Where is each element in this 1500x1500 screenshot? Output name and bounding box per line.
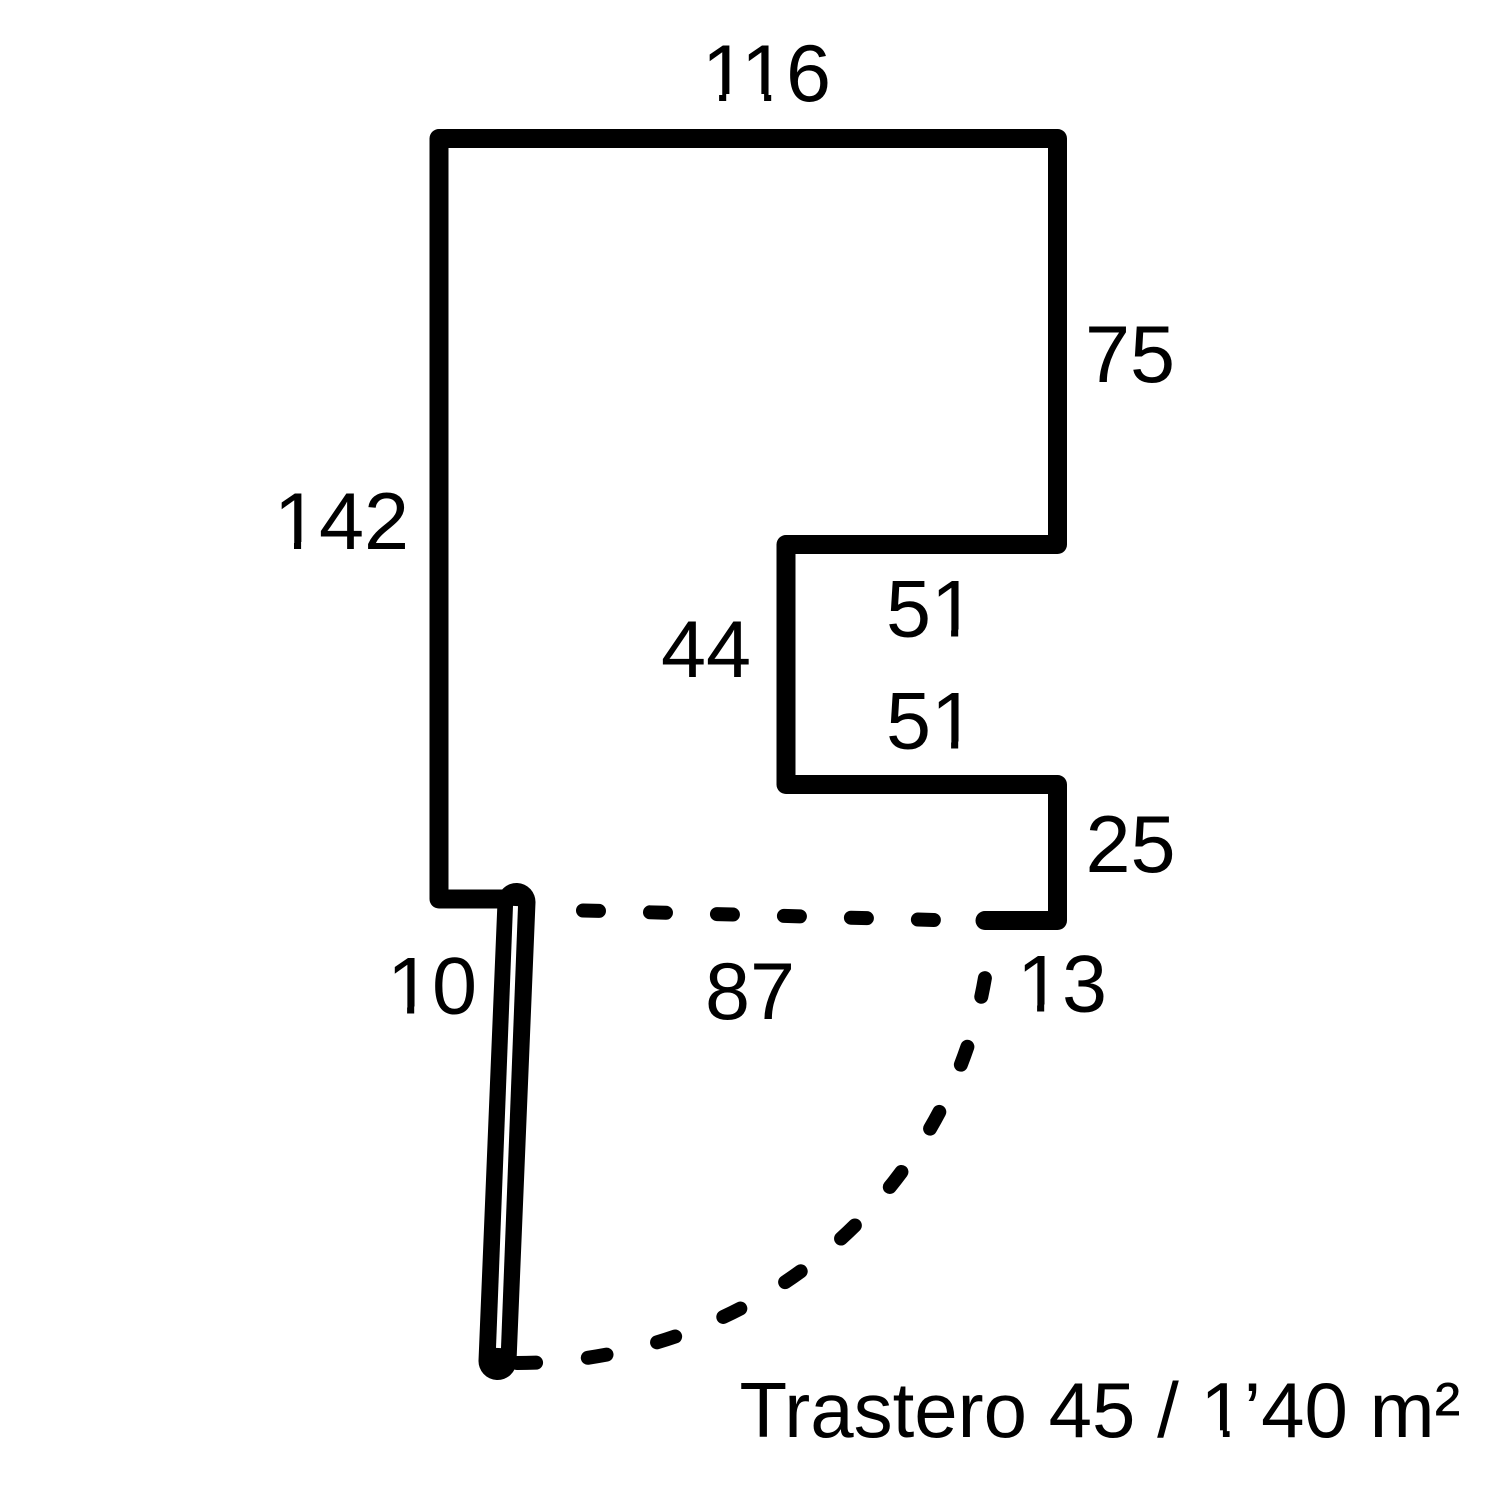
svg-text:142: 142 bbox=[274, 477, 409, 567]
svg-text:44: 44 bbox=[661, 605, 751, 695]
svg-text:116: 116 bbox=[702, 29, 831, 119]
svg-text:75: 75 bbox=[1085, 310, 1175, 400]
svg-text:13: 13 bbox=[1017, 940, 1107, 1030]
svg-text:51: 51 bbox=[886, 677, 976, 767]
svg-text:10: 10 bbox=[387, 942, 477, 1032]
svg-text:Trastero 45 / 1’40 m²: Trastero 45 / 1’40 m² bbox=[739, 1366, 1460, 1454]
svg-text:51: 51 bbox=[886, 565, 976, 655]
svg-text:25: 25 bbox=[1085, 800, 1175, 890]
svg-text:87: 87 bbox=[705, 947, 795, 1037]
